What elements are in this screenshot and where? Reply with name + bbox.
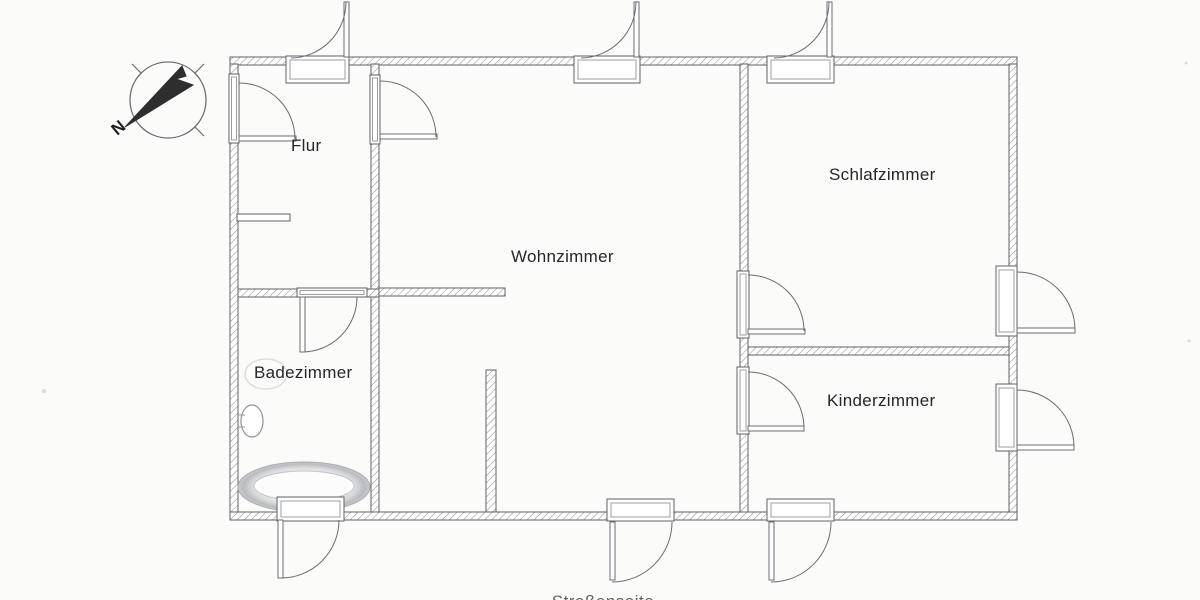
door-frame-wohnzimmer-bottom [607, 499, 674, 521]
wall-wohnzimmer-right [740, 337, 748, 368]
wall-right-segment [1009, 64, 1017, 267]
wall-bottom-segment [833, 512, 1017, 520]
door-frame-flur-wohnzimmer [370, 75, 380, 144]
door-flur-entrance [291, 2, 349, 58]
door-frame-wohnzimmer-top [574, 56, 640, 83]
door-wohnzimmer-top [581, 2, 639, 58]
wall-left-segment [230, 143, 238, 520]
door-kinderzimmer-right [1017, 390, 1074, 450]
room-label-badezimmer: Badezimmer [254, 364, 352, 381]
north-arrow-compass-icon: N [108, 62, 206, 139]
wall-wohnzimmer-partial [379, 288, 505, 296]
door-frames [229, 56, 1017, 521]
wall-wohnzimmer-right [740, 64, 748, 272]
door-frame-kinderzimmer-bottom [767, 499, 834, 521]
room-label-schlafzimmer: Schlafzimmer [829, 166, 936, 183]
door-kinderzimmer-bottom [769, 522, 831, 582]
floor-plan-drawing: N [0, 0, 1200, 600]
door-frame-wohnzimmer-kinderzimmer [737, 367, 749, 434]
door-badezimmer-bottom [278, 520, 339, 578]
wall-flur-wohnzimmer [371, 144, 379, 512]
door-frame-schlafzimmer-top [767, 56, 834, 83]
door-wohnzimmer-bottom [610, 522, 672, 582]
wall-top-segment [639, 57, 768, 65]
wall-wohnzimmer-stub [486, 370, 496, 512]
floor-plan-page: N Flur Wohnzimmer Schlafzimmer Badezimme… [0, 0, 1200, 600]
wall-schlafzimmer-kinderzimmer [748, 347, 1009, 355]
wall-left-segment [230, 64, 238, 74]
compass-needle [125, 66, 193, 127]
room-label-wohnzimmer: Wohnzimmer [511, 248, 614, 265]
half-wall-flur [237, 214, 290, 221]
room-label-kinderzimmer: Kinderzimmer [827, 392, 935, 409]
bottom-caption-clipped: Straßenseite [538, 593, 668, 600]
wall-bottom-segment [230, 512, 278, 520]
door-wohnzimmer-schlafzimmer [748, 275, 805, 334]
door-frame-wohnzimmer-schlafzimmer [737, 271, 749, 338]
door-frame-kinderzimmer-right [996, 384, 1017, 451]
door-frame-schlafzimmer-right [996, 266, 1017, 336]
door-flur-left [239, 83, 296, 141]
wall-flur-badezimmer [238, 289, 299, 297]
wall-bottom-segment [343, 512, 608, 520]
wall-top-segment [230, 57, 288, 65]
door-frame-badezimmer [297, 288, 367, 297]
wall-right-segment [1009, 335, 1017, 385]
wall-wohnzimmer-right [740, 433, 748, 512]
compass-north-label: N [108, 117, 130, 139]
wall-bottom-segment [673, 512, 768, 520]
wall-flur-wohnzimmer [371, 64, 379, 76]
door-frame-flur-left [229, 74, 239, 143]
door-badezimmer [300, 297, 357, 352]
room-label-flur: Flur [291, 137, 321, 154]
washbasin-icon [241, 405, 263, 437]
door-flur-wohnzimmer [380, 81, 437, 139]
compass-center-dot [161, 97, 165, 101]
wall-top-segment [833, 57, 1017, 65]
door-wohnzimmer-kinderzimmer [748, 372, 804, 431]
door-schlafzimmer-right [1017, 272, 1075, 333]
wall-right-segment [1009, 450, 1017, 512]
scan-speckles [42, 62, 1191, 394]
wall-top-segment [349, 57, 575, 65]
door-schlafzimmer-top [774, 2, 832, 58]
door-frame-badezimmer-bottom [277, 497, 344, 521]
door-frame-flur-entrance [286, 56, 349, 83]
